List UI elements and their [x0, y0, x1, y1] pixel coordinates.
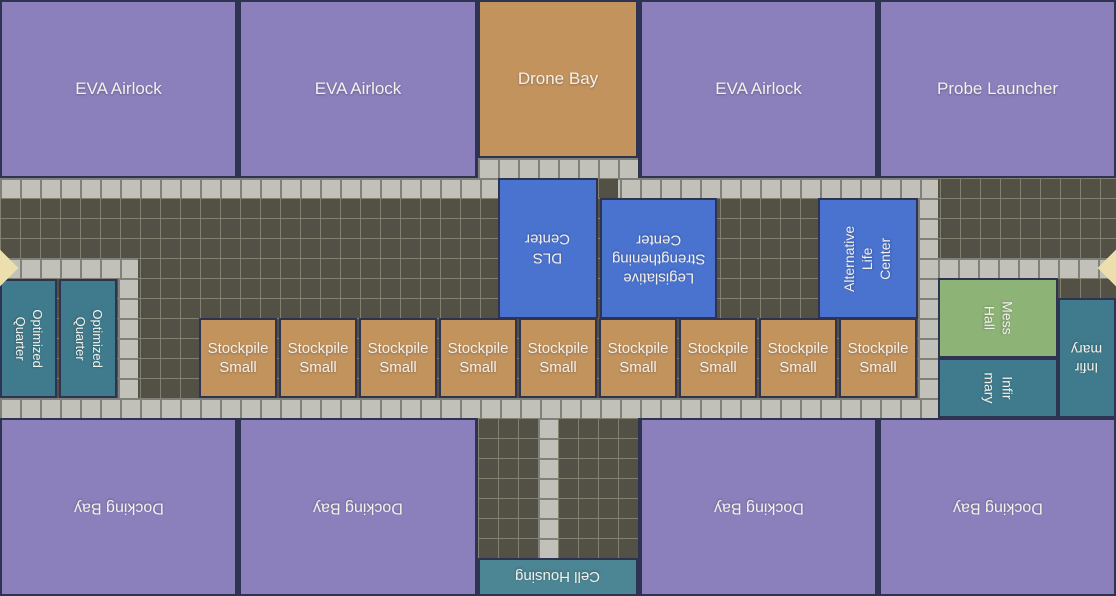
stockpile-small-4-label: Stockpile Small: [448, 339, 509, 377]
stockpile-small-6[interactable]: Stockpile Small: [599, 318, 677, 398]
eva-airlock-1[interactable]: EVA Airlock: [0, 0, 237, 178]
alternative-life-center-label: Alternative Life Center: [841, 225, 895, 291]
docking-bay-4[interactable]: Docking Bay: [879, 418, 1116, 596]
walkway-top: [0, 178, 938, 198]
docking-bay-1-label: Docking Bay: [74, 497, 164, 517]
walkway-drone-bay: [478, 158, 638, 178]
stockpile-small-9-label: Stockpile Small: [848, 339, 909, 377]
walkway-right-column: [918, 198, 938, 398]
stockpile-small-7-label: Stockpile Small: [688, 339, 749, 377]
infirmary-1-label: Infir mary: [980, 372, 1016, 403]
floor-patch-dark: [598, 178, 618, 198]
stockpile-small-8-label: Stockpile Small: [768, 339, 829, 377]
docking-bay-3-label: Docking Bay: [714, 497, 804, 517]
stockpile-small-2[interactable]: Stockpile Small: [279, 318, 357, 398]
infirmary-1[interactable]: Infir mary: [938, 358, 1058, 418]
stockpile-small-8[interactable]: Stockpile Small: [759, 318, 837, 398]
station-map[interactable]: EVA AirlockEVA AirlockDrone BayEVA Airlo…: [0, 0, 1116, 596]
alternative-life-center[interactable]: Alternative Life Center: [818, 198, 918, 319]
probe-launcher-label: Probe Launcher: [937, 78, 1058, 100]
cell-housing-label: Cell Housing: [515, 567, 600, 586]
stockpile-small-3[interactable]: Stockpile Small: [359, 318, 437, 398]
stockpile-small-4[interactable]: Stockpile Small: [439, 318, 517, 398]
dls-center-label: DLS Center: [525, 229, 570, 267]
docking-bay-1[interactable]: Docking Bay: [0, 418, 237, 596]
stockpile-small-5-label: Stockpile Small: [528, 339, 589, 377]
cell-housing[interactable]: Cell Housing: [478, 558, 638, 596]
stockpile-small-3-label: Stockpile Small: [368, 339, 429, 377]
eva-airlock-2[interactable]: EVA Airlock: [239, 0, 477, 178]
optimized-quarter-1-label: Optimized Quarter: [12, 309, 45, 368]
probe-launcher[interactable]: Probe Launcher: [879, 0, 1116, 178]
eva-airlock-1-label: EVA Airlock: [75, 78, 162, 100]
walkway-right-branch: [938, 258, 1116, 278]
legislative-strengthening-center[interactable]: Legislative Strengthening Center: [600, 198, 717, 319]
optimized-quarter-1[interactable]: Optimized Quarter: [0, 279, 57, 398]
walkway-left-branch: [0, 258, 138, 278]
corridor-south-floor: [478, 418, 638, 558]
drone-bay-label: Drone Bay: [518, 68, 598, 90]
docking-bay-3[interactable]: Docking Bay: [640, 418, 877, 596]
stockpile-small-9[interactable]: Stockpile Small: [839, 318, 917, 398]
walkway-left-column: [118, 278, 138, 398]
eva-airlock-3-label: EVA Airlock: [715, 78, 802, 100]
docking-bay-2-label: Docking Bay: [313, 497, 403, 517]
stockpile-small-7[interactable]: Stockpile Small: [679, 318, 757, 398]
docking-bay-4-label: Docking Bay: [953, 497, 1043, 517]
stockpile-small-6-label: Stockpile Small: [608, 339, 669, 377]
stockpile-small-5[interactable]: Stockpile Small: [519, 318, 597, 398]
docking-bay-2[interactable]: Docking Bay: [239, 418, 477, 596]
infirmary-2-label: Infir mary: [1071, 340, 1102, 376]
legislative-strengthening-center-label: Legislative Strengthening Center: [612, 230, 705, 288]
stockpile-small-1[interactable]: Stockpile Small: [199, 318, 277, 398]
optimized-quarter-2[interactable]: Optimized Quarter: [59, 279, 117, 398]
optimized-quarter-2-label: Optimized Quarter: [71, 309, 104, 368]
infirmary-2[interactable]: Infir mary: [1058, 298, 1116, 418]
dls-center[interactable]: DLS Center: [498, 178, 598, 319]
mess-hall-label: Mess Hall: [980, 301, 1016, 334]
eva-airlock-3[interactable]: EVA Airlock: [640, 0, 877, 178]
eva-airlock-2-label: EVA Airlock: [315, 78, 402, 100]
walkway-south-column: [538, 418, 558, 558]
mess-hall[interactable]: Mess Hall: [938, 278, 1058, 358]
drone-bay[interactable]: Drone Bay: [478, 0, 638, 158]
stockpile-small-1-label: Stockpile Small: [208, 339, 269, 377]
stockpile-small-2-label: Stockpile Small: [288, 339, 349, 377]
walkway-bottom: [0, 398, 938, 418]
